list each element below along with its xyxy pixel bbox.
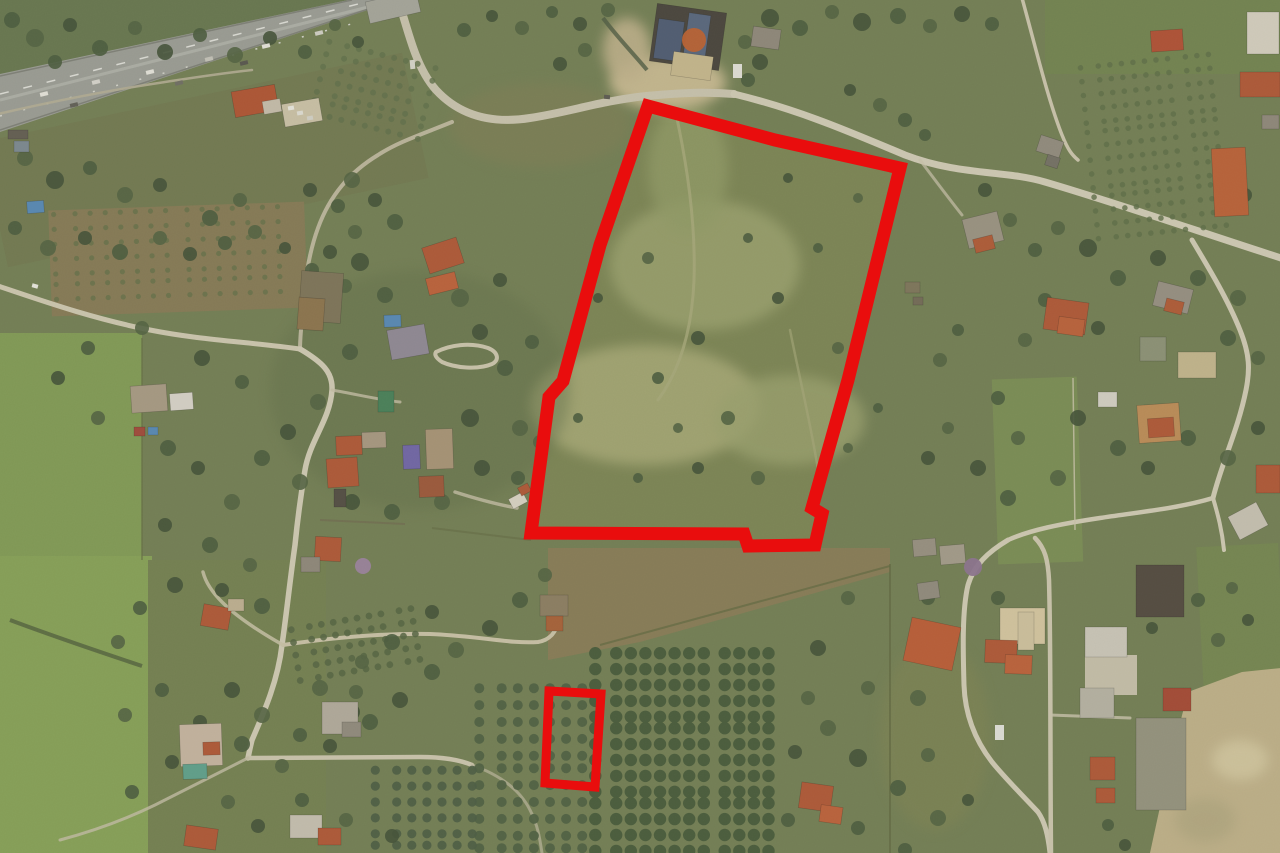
satellite-map-image [0,0,1280,853]
aerial-photo-canvas [0,0,1280,853]
